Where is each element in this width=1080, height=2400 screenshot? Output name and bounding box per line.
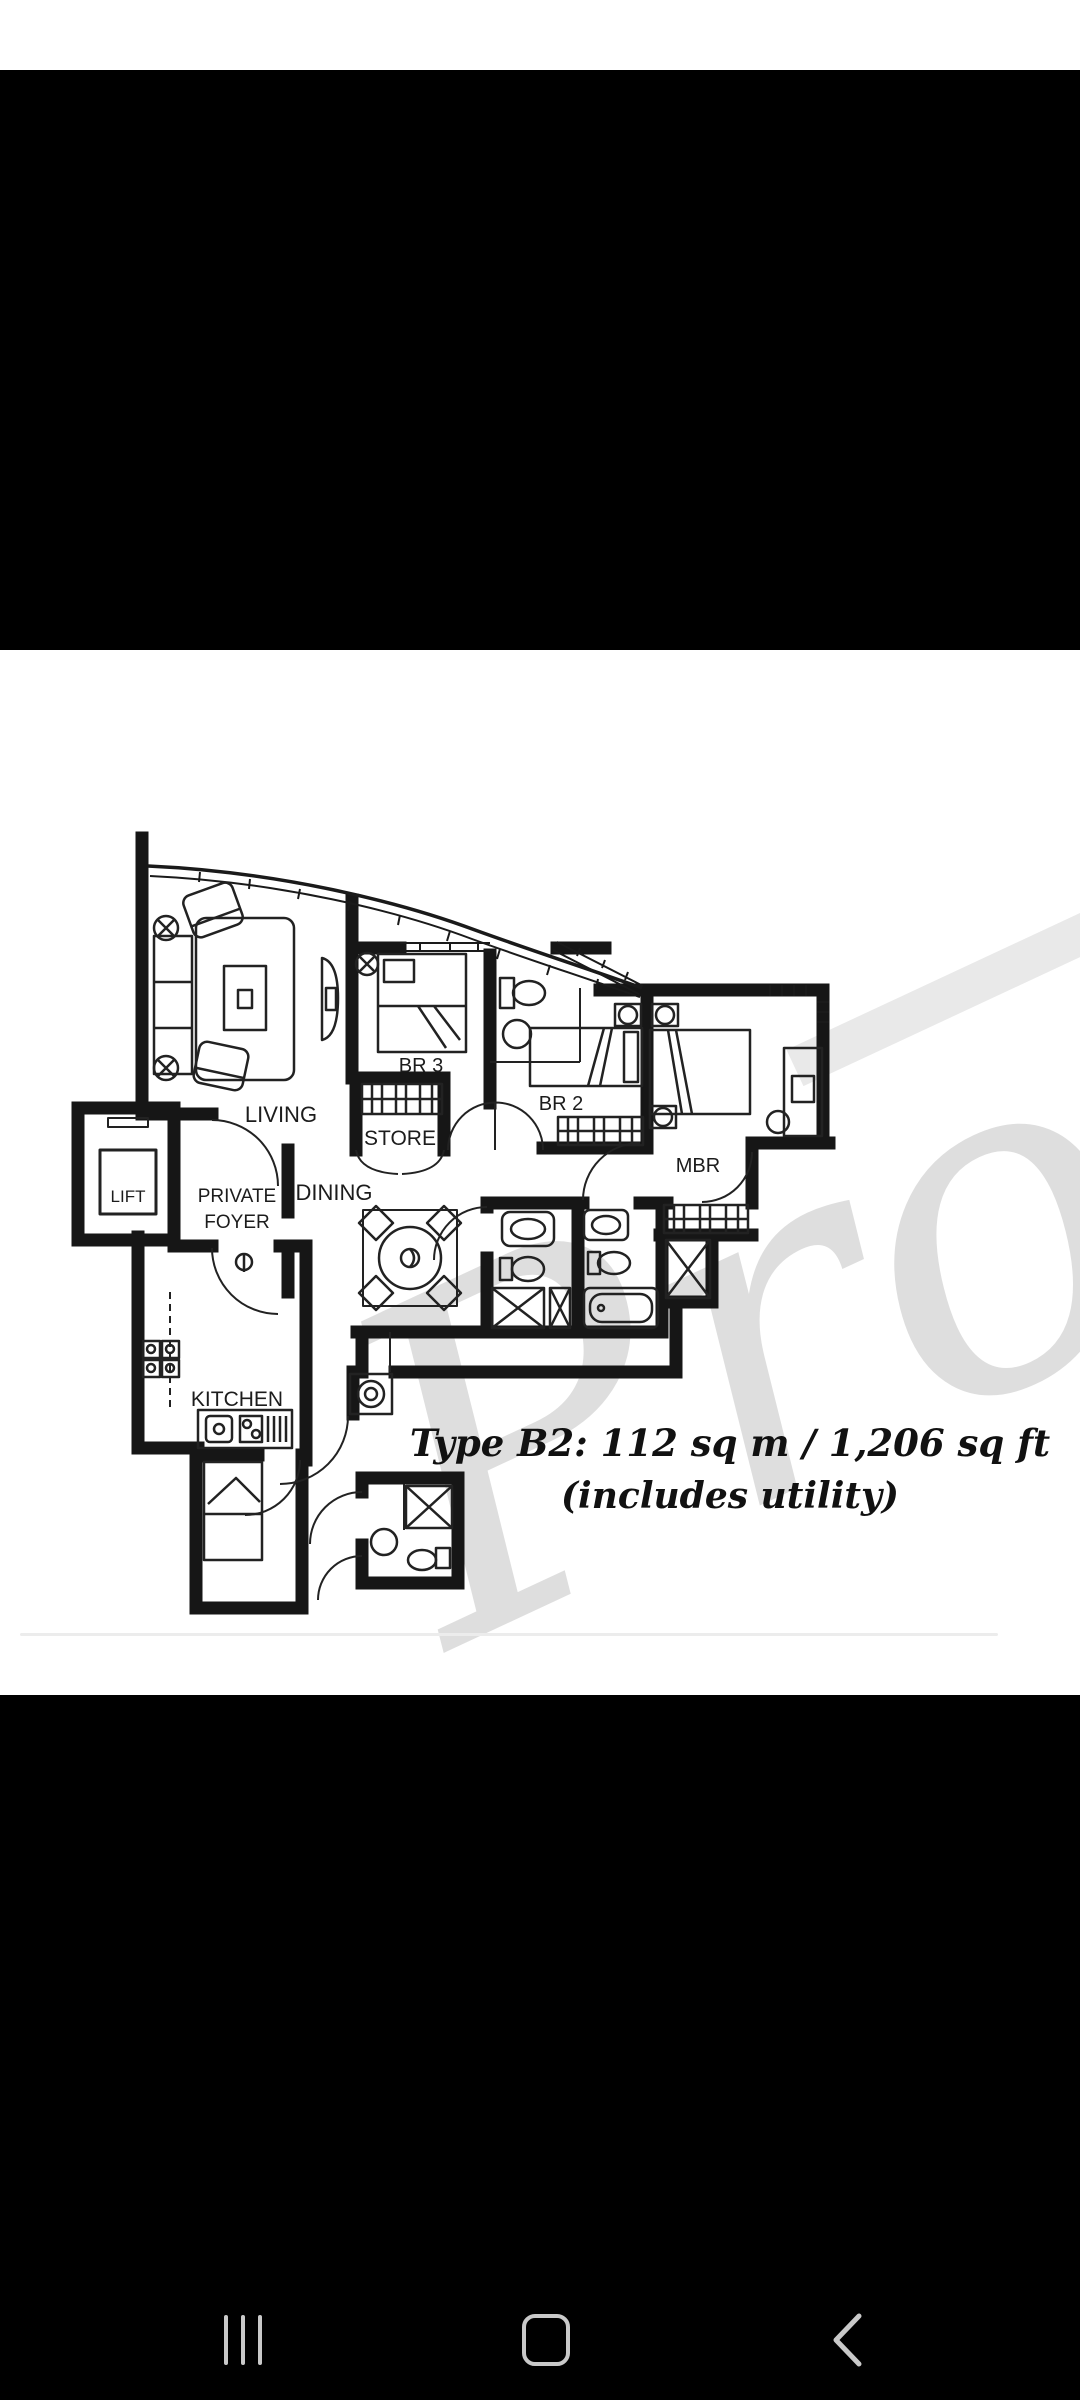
home-icon	[522, 2314, 570, 2366]
label-dining: DINING	[296, 1180, 373, 1205]
label-foyer-2: FOYER	[204, 1212, 269, 1233]
recents-icon	[224, 2315, 262, 2365]
label-mbr: MBR	[676, 1155, 720, 1177]
navigation-bar	[0, 2280, 1080, 2400]
back-button[interactable]	[768, 2280, 928, 2400]
floor-plan-drawing: Prop	[0, 650, 1080, 1695]
status-bar	[0, 0, 1080, 70]
label-lift: LIFT	[111, 1187, 146, 1206]
label-br3: BR 3	[399, 1055, 443, 1077]
content-divider	[20, 1633, 998, 1636]
phone-screen: Prop	[0, 0, 1080, 2400]
home-button[interactable]	[466, 2280, 626, 2400]
caption-line-1: Type B2: 112 sq m / 1,206 sq ft	[410, 1421, 1050, 1465]
label-br2: BR 2	[539, 1093, 583, 1115]
label-kitchen: KITCHEN	[191, 1388, 283, 1411]
caption-line-2: (includes utility)	[561, 1475, 899, 1517]
back-icon	[828, 2312, 868, 2368]
label-store: STORE	[364, 1127, 436, 1150]
letterbox-top	[0, 70, 1080, 650]
floor-plan-image[interactable]: Prop	[0, 650, 1080, 1695]
recents-button[interactable]	[163, 2280, 323, 2400]
label-foyer-1: PRIVATE	[198, 1186, 276, 1207]
label-living: LIVING	[245, 1102, 317, 1127]
